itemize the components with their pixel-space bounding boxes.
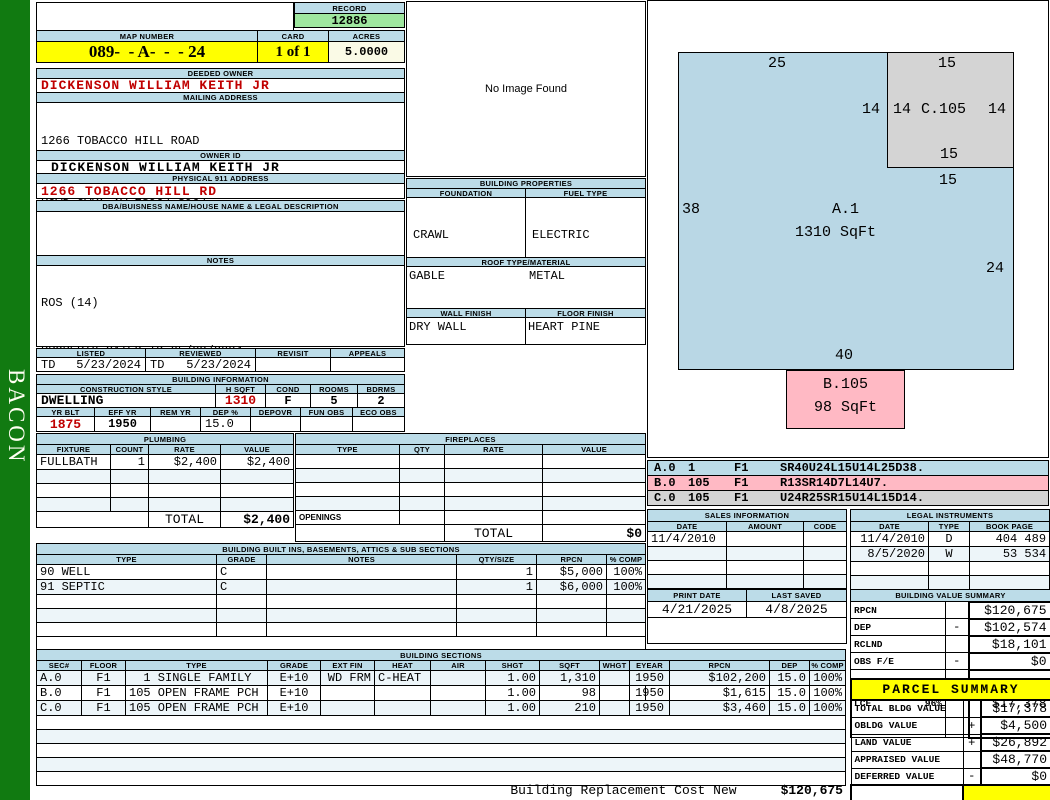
col-header: HEAT [375, 661, 431, 671]
shgt-cell: 1.00 [486, 671, 540, 686]
mailing-line-1: 1266 TOBACCO HILL ROAD [41, 131, 400, 148]
dep-cell: 15.0 [770, 701, 810, 716]
floor-cell: F1 [82, 671, 126, 686]
col-header: RATE [149, 445, 221, 455]
parcel-value: $48,770 [981, 751, 1050, 768]
comp-cell: 100% [810, 686, 846, 701]
col-header: TYPE [37, 555, 217, 565]
empty-row [296, 483, 646, 497]
grade-cell: E+10 [268, 671, 321, 686]
notes-cell [267, 580, 457, 595]
rpcn-cell: $1,615 [670, 686, 770, 701]
reviewed-by: TD [150, 358, 164, 372]
col-header: BOOK PAGE [970, 522, 1050, 532]
col-header: QTY/SIZE [457, 555, 537, 565]
col-header: EXT FIN [321, 661, 375, 671]
listed-value: TD5/23/2024 [36, 357, 146, 372]
sketch-c-name: C.105 [921, 101, 966, 118]
sale-date-cell: 11/4/2010 [648, 532, 727, 547]
dim-a-left: 38 [682, 201, 700, 218]
empty-row [648, 547, 847, 561]
summary-op: - [946, 619, 969, 636]
summary-op: - [946, 653, 969, 670]
openings-label: OPENINGS [296, 511, 400, 525]
code-vector: SR40U24L15U14L25D38. [780, 461, 924, 475]
air-cell [431, 671, 486, 686]
eyear-cell: 1950 [630, 671, 670, 686]
instr-bookpage-cell: 404 489 [970, 532, 1050, 547]
sales-title: SALES INFORMATION [648, 510, 847, 522]
sketch-code-row-c: C.0 105 F1 U24R25SR15U14L15D14. [647, 490, 1049, 506]
plumbing-row: FULLBATH 1 $2,400 $2,400 [37, 455, 294, 470]
instr-type-cell: W [929, 547, 970, 562]
empty-row [37, 470, 294, 484]
summary-row: RPCN $120,675 [851, 602, 1050, 619]
sqft-cell: 98 [540, 686, 600, 701]
col-header: % COMP [810, 661, 846, 671]
col-header: DEP [770, 661, 810, 671]
taxable-label: TAXABLE VALUE [851, 785, 963, 800]
sec-cell: A.0 [37, 671, 82, 686]
code-mult: 105 [688, 476, 734, 490]
code-vector: U24R25SR15U14L15D14. [780, 491, 924, 505]
fireplaces-title: FIREPLACES [296, 434, 646, 445]
openings-row: OPENINGS [296, 511, 646, 525]
empty-row [851, 562, 1050, 576]
last-saved-value: 4/8/2025 [747, 602, 847, 618]
rpcn-cell: $6,000 [537, 580, 607, 595]
depovr-value [250, 416, 301, 432]
hsqft-value: 1310 [215, 393, 266, 408]
sketch-a-sqft: 1310 SqFt [795, 224, 876, 241]
empty-row [296, 455, 646, 469]
dim-a-bottom: 40 [835, 347, 853, 364]
col-header: NOTES [267, 555, 457, 565]
bdrms-value: 2 [357, 393, 405, 408]
code-sec: A.0 [648, 461, 688, 475]
sec-cell: C.0 [37, 701, 82, 716]
col-header: EYEAR [630, 661, 670, 671]
revisit-value [255, 357, 331, 372]
listed-date: 5/23/2024 [76, 358, 141, 372]
sketch-code-row-a: A.0 1 F1 SR40U24L15U14L25D38. [647, 460, 1049, 476]
comp-cell: 100% [810, 671, 846, 686]
grade-cell: E+10 [268, 686, 321, 701]
type-cell: 90 WELL [37, 565, 217, 580]
floor-cell: F1 [82, 701, 126, 716]
parcel-value: $4,500 [981, 717, 1050, 734]
sqft-cell: 1,310 [540, 671, 600, 686]
summary-row: RCLND $18,101 [851, 636, 1050, 653]
parcel-label: OBLDG VALUE [851, 717, 963, 734]
code-vector: R13SR14D7L14U7. [780, 476, 888, 490]
comp-cell: 100% [607, 565, 646, 580]
mailing-address-box: 1266 TOBACCO HILL ROAD ROAD OAK, VA 2396… [36, 102, 405, 151]
type-cell: 105 OPEN FRAME PCH [126, 701, 268, 716]
code-floor: F1 [734, 461, 780, 475]
print-date-table: PRINT DATE LAST SAVED 4/21/2025 4/8/2025 [647, 589, 846, 644]
col-header: VALUE [543, 445, 646, 455]
instr-date-cell: 11/4/2010 [851, 532, 929, 547]
sale-code-cell [804, 532, 847, 547]
taxable-value: $48,770 [963, 785, 1050, 800]
extfin-cell [321, 686, 375, 701]
section-row: C.0 F1 105 OPEN FRAME PCH E+10 1.00 210 … [37, 701, 846, 716]
empty-row [37, 623, 646, 637]
dim-a-top: 25 [768, 55, 786, 72]
whgt-cell [600, 671, 630, 686]
deeded-owner-value: DICKENSON WILLIAM KEITH JR [36, 78, 405, 93]
col-header: SEC# [37, 661, 82, 671]
col-header: TYPE [929, 522, 970, 532]
plumbing-total-value: $2,400 [221, 512, 294, 528]
dep-cell: 15.0 [770, 686, 810, 701]
notes-line-1: ROS (14) [41, 294, 400, 310]
dim-c-right: 14 [988, 101, 1006, 118]
physical-911-value: 1266 TOBACCO HILL RD [36, 183, 405, 199]
sec-cell: B.0 [37, 686, 82, 701]
summary-row: DEP - $102,574 [851, 619, 1050, 636]
foundation-box: CRAWL CINDER BLOCK [406, 197, 526, 258]
summary-label: DEP [851, 619, 946, 636]
extfin-cell: WD FRM [321, 671, 375, 686]
empty-row [37, 730, 846, 744]
fireplaces-total-label: TOTAL [445, 525, 543, 542]
map-number-value: 089- - A- - - 24 [36, 41, 258, 63]
sketch-codes: A.0 1 F1 SR40U24L15U14L25D38. B.0 105 F1… [647, 460, 1049, 506]
parcel-row: DEFERRED VALUE - $0 [851, 768, 1050, 785]
dba-box: 240000727 WB 53/534 DB 404/489 DB 295/54… [36, 211, 405, 256]
appeals-value [330, 357, 405, 372]
grade-cell: C [217, 580, 267, 595]
fixture-cell: FULLBATH [37, 455, 111, 470]
effyr-value: 1950 [94, 416, 151, 432]
shgt-cell: 1.00 [486, 701, 540, 716]
floor-cell: F1 [82, 686, 126, 701]
wall-finish-box: DRY WALL [406, 317, 526, 345]
sketch-b-name: B.105 [823, 376, 868, 393]
parcel-op: - [963, 768, 981, 785]
empty-row [37, 498, 294, 512]
comp-cell: 100% [607, 580, 646, 595]
summary-label: RPCN [851, 602, 946, 619]
parcel-label: APPRAISED VALUE [851, 751, 963, 768]
builtin-row: 90 WELL C 1 $5,000 100% [37, 565, 646, 580]
summary-label: RCLND [851, 636, 946, 653]
dep-pct-value: 15.0 [200, 416, 251, 432]
col-header: GRADE [268, 661, 321, 671]
instrument-row: 8/5/2020 W 53 534 [851, 547, 1050, 562]
fireplaces-table: FIREPLACES TYPE QTY RATE VALUE OPENINGS … [295, 433, 645, 542]
type-cell: 1 SINGLE FAMILY [126, 671, 268, 686]
col-header: DATE [648, 522, 727, 532]
parcel-row: TOTAL BLDG VALUE $17,378 [851, 700, 1050, 717]
code-mult: 1 [688, 461, 734, 475]
extfin-cell [321, 701, 375, 716]
section-row: A.0 F1 1 SINGLE FAMILY E+10 WD FRM C-HEA… [37, 671, 846, 686]
shgt-cell: 1.00 [486, 686, 540, 701]
parcel-row: LAND VALUE + $26,892 [851, 734, 1050, 751]
sale-amount-cell [727, 532, 804, 547]
dim-c-left-inner: 14 [893, 101, 911, 118]
sales-row: 11/4/2010 [648, 532, 847, 547]
empty-row [37, 484, 294, 498]
empty-row [37, 609, 646, 623]
rpcn-cell: $5,000 [537, 565, 607, 580]
remyr-value [150, 416, 201, 432]
code-floor: F1 [734, 476, 780, 490]
summary-row: OBS F/E - $0 [851, 653, 1050, 670]
reviewed-value: TD5/23/2024 [145, 357, 256, 372]
code-floor: F1 [734, 491, 780, 505]
fuel-type-value: ELECTRIC [530, 226, 641, 242]
cond-value: F [265, 393, 311, 408]
summary-value: $18,101 [969, 636, 1050, 653]
parcel-op [963, 700, 981, 717]
construction-style-value: DWELLING [36, 393, 216, 408]
heat-cell [375, 701, 431, 716]
col-header: RATE [445, 445, 543, 455]
record-value: 12886 [294, 13, 405, 28]
col-header: AIR [431, 661, 486, 671]
empty-row [296, 469, 646, 483]
instruments-table: LEGAL INSTRUMENTS DATE TYPE BOOK PAGE 11… [850, 509, 1049, 590]
type-cell: 91 SEPTIC [37, 580, 217, 595]
col-header: FIXTURE [37, 445, 111, 455]
parcel-row: OBLDG VALUE + $4,500 [851, 717, 1050, 734]
comp-cell: 100% [810, 701, 846, 716]
col-header: RPCN [670, 661, 770, 671]
empty-row [37, 744, 846, 758]
fuel-type-box: ELECTRIC [525, 197, 646, 258]
no-image-text: No Image Found [485, 83, 567, 95]
col-header: COUNT [111, 445, 149, 455]
empty-row [648, 618, 847, 644]
sketch-a-name: A.1 [832, 201, 859, 218]
parcel-label: DEFERRED VALUE [851, 768, 963, 785]
qty-cell: 1 [457, 565, 537, 580]
empty-row [37, 595, 646, 609]
heat-cell: C-HEAT [375, 671, 431, 686]
empty-row [648, 575, 847, 589]
section-row: B.0 F1 105 OPEN FRAME PCH E+10 1.00 98 1… [37, 686, 846, 701]
col-header: VALUE [221, 445, 294, 455]
summary-value: $102,574 [969, 619, 1050, 636]
photo-placeholder: No Image Found [406, 1, 646, 177]
col-header: QTY [400, 445, 445, 455]
summary-label: OBS F/E [851, 653, 946, 670]
col-header: DATE [851, 522, 929, 532]
value-summary-title: BUILDING VALUE SUMMARY [851, 590, 1050, 602]
grade-cell: E+10 [268, 701, 321, 716]
instr-bookpage-cell: 53 534 [970, 547, 1050, 562]
roof-box: GABLE METAL [406, 266, 646, 309]
parcel-label: TOTAL BLDG VALUE [851, 700, 963, 717]
sidebar-vertical-label: BACON [1, 342, 29, 492]
parcel-summary-title: PARCEL SUMMARY [851, 679, 1050, 700]
dim-c-bottom-inner: 15 [940, 146, 958, 163]
plumbing-table: PLUMBING FIXTURE COUNT RATE VALUE FULLBA… [36, 433, 293, 528]
col-header: WHGT [600, 661, 630, 671]
code-mult: 105 [688, 491, 734, 505]
sqft-cell: 210 [540, 701, 600, 716]
col-header: TYPE [296, 445, 400, 455]
sidebar: BACON [0, 0, 30, 800]
print-date-row: 4/21/2025 4/8/2025 [648, 602, 847, 618]
fireplaces-total-value: $0 [543, 525, 646, 542]
code-sec: B.0 [648, 476, 688, 490]
foundation-line-1: CRAWL [411, 226, 521, 242]
replacement-cost-line: Building Replacement Cost New $120,675 [36, 782, 845, 798]
print-date-value: 4/21/2025 [648, 602, 747, 618]
notes-box: ROS (14) PROPERTY GATED-TD 05/23/2024 [36, 265, 405, 347]
print-date-label: PRINT DATE [648, 590, 747, 602]
roof-type-value: GABLE [409, 269, 445, 283]
col-header: SHGT [486, 661, 540, 671]
empty-row [648, 561, 847, 575]
acres-value: 5.0000 [328, 41, 405, 63]
floor-finish-value: HEART PINE [528, 320, 600, 334]
col-header: RPCN [537, 555, 607, 565]
rpcn-cell: $102,200 [670, 671, 770, 686]
whgt-cell [600, 686, 630, 701]
sections-title: BUILDING SECTIONS [37, 650, 846, 661]
parcel-op: + [963, 717, 981, 734]
roof-material-value: METAL [529, 269, 565, 283]
heat-cell [375, 686, 431, 701]
code-sec: C.0 [648, 491, 688, 505]
eyear-cell: 1950 [630, 701, 670, 716]
grade-cell: C [217, 565, 267, 580]
yrblt-value: 1875 [36, 416, 95, 432]
dim-c-top: 15 [938, 55, 956, 72]
col-header: SQFT [540, 661, 600, 671]
parcel-label: LAND VALUE [851, 734, 963, 751]
parcel-op [963, 751, 981, 768]
type-cell: 105 OPEN FRAME PCH [126, 686, 268, 701]
col-header: GRADE [217, 555, 267, 565]
summary-op [946, 602, 969, 619]
eyear-cell: 1950 [630, 686, 670, 701]
col-header: CODE [804, 522, 847, 532]
summary-value: $0 [969, 653, 1050, 670]
air-cell [431, 701, 486, 716]
ecoobs-value [352, 416, 405, 432]
sketch-code-row-b: B.0 105 F1 R13SR14D7L14U7. [647, 475, 1049, 491]
parcel-row: APPRAISED VALUE $48,770 [851, 751, 1050, 768]
plumbing-title: PLUMBING [37, 434, 294, 445]
parcel-value: $17,378 [981, 700, 1050, 717]
parcel-summary: PARCEL SUMMARY TOTAL BLDG VALUE $17,378 … [850, 678, 1050, 800]
count-cell: 1 [111, 455, 149, 470]
rpcn-cell: $3,460 [670, 701, 770, 716]
col-header: % COMP [607, 555, 646, 565]
taxable-row: TAXABLE VALUE $48,770 [851, 785, 1050, 800]
value-cell: $2,400 [221, 455, 294, 470]
parcel-value: $0 [981, 768, 1050, 785]
instr-date-cell: 8/5/2020 [851, 547, 929, 562]
empty-row [37, 758, 846, 772]
listed-by: TD [41, 358, 55, 372]
rooms-value: 5 [310, 393, 358, 408]
empty-row [296, 497, 646, 511]
sales-table: SALES INFORMATION DATE AMOUNT CODE 11/4/… [647, 509, 846, 589]
reviewed-date: 5/23/2024 [186, 358, 251, 372]
empty-row [37, 716, 846, 730]
parcel-op: + [963, 734, 981, 751]
last-saved-label: LAST SAVED [747, 590, 847, 602]
instr-type-cell: D [929, 532, 970, 547]
replacement-cost-value: $120,675 [781, 783, 843, 798]
plumbing-total-label: TOTAL [149, 512, 221, 528]
fireplaces-total-row: TOTAL $0 [296, 525, 646, 542]
instruments-title: LEGAL INSTRUMENTS [851, 510, 1050, 522]
dep-cell: 15.0 [770, 671, 810, 686]
notes-cell [267, 565, 457, 580]
card-value: 1 of 1 [257, 41, 329, 63]
plumbing-total-row: TOTAL $2,400 [37, 512, 294, 528]
summary-op [946, 636, 969, 653]
whgt-cell [600, 701, 630, 716]
air-cell [431, 686, 486, 701]
sketch-b-sqft: 98 SqFt [814, 399, 877, 416]
summary-value: $120,675 [969, 602, 1050, 619]
dim-c-left-outer: 14 [862, 101, 880, 118]
qty-cell: 1 [457, 580, 537, 595]
replacement-cost-label: Building Replacement Cost New [510, 783, 736, 798]
col-header: FLOOR [82, 661, 126, 671]
dim-a-right: 24 [986, 260, 1004, 277]
funobs-value [300, 416, 353, 432]
rate-cell: $2,400 [149, 455, 221, 470]
floor-finish-box: HEART PINE [525, 317, 646, 345]
empty-row [851, 576, 1050, 590]
builtins-title: BUILDING BUILT INS, BASEMENTS, ATTICS & … [37, 544, 646, 555]
dim-c-bottom-outer: 15 [939, 172, 957, 189]
property-record-card: { "sidebar": {"label": "BACON"}, "header… [0, 0, 1050, 800]
instrument-row: 11/4/2010 D 404 489 [851, 532, 1050, 547]
col-header: TYPE [126, 661, 268, 671]
wall-finish-value: DRY WALL [409, 320, 467, 334]
col-header: AMOUNT [727, 522, 804, 532]
builtin-row: 91 SEPTIC C 1 $6,000 100% [37, 580, 646, 595]
owner-id-value: DICKENSON WILLIAM KEITH JR [36, 160, 405, 174]
title-block: Charlotte County Virginia Commissioner o… [36, 2, 294, 31]
parcel-value: $26,892 [981, 734, 1050, 751]
building-sections-table: BUILDING SECTIONS SEC# FLOOR TYPE GRADE … [36, 649, 845, 786]
